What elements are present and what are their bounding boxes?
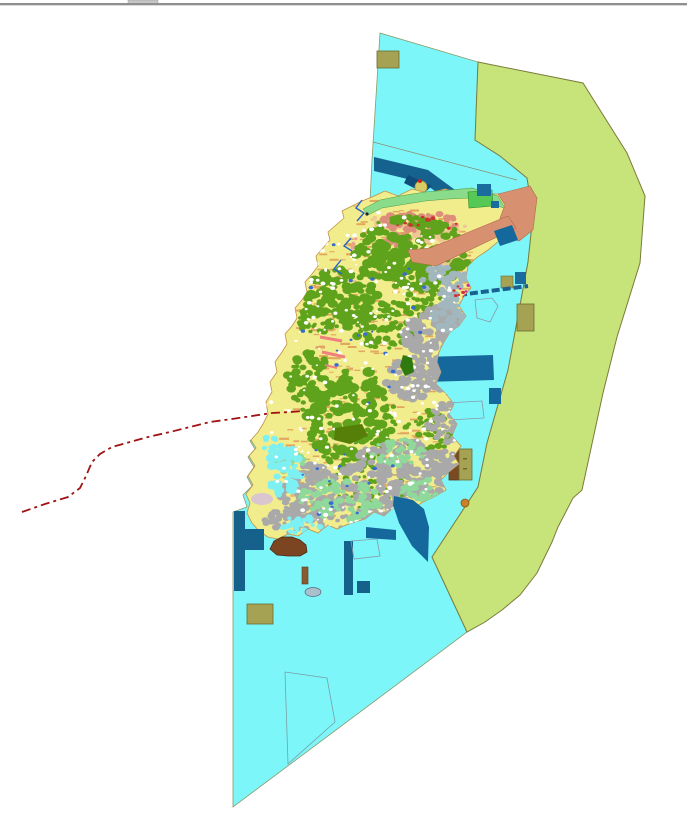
khaki-square-south bbox=[247, 604, 273, 624]
window-top-border-light bbox=[0, 5, 687, 6]
blue-pad-east bbox=[515, 272, 526, 284]
blue-square-northeast bbox=[477, 184, 491, 196]
nw-black-dot bbox=[365, 212, 368, 215]
facility-mark-2 bbox=[463, 468, 467, 470]
facility-mark-1 bbox=[463, 458, 467, 460]
khaki-rect-east bbox=[517, 304, 534, 331]
orange-buoy-dot bbox=[461, 499, 469, 507]
blue-square-northeast-small bbox=[491, 201, 499, 208]
south-pier-bar bbox=[344, 541, 353, 595]
facility-rect-khaki bbox=[459, 449, 472, 480]
south-blue-square bbox=[357, 581, 370, 593]
sw-pier-vertical bbox=[234, 511, 245, 591]
khaki-pad-east bbox=[501, 276, 513, 288]
blue-pad-southeast bbox=[489, 388, 501, 404]
landuse-map bbox=[0, 0, 687, 821]
sw-pier-arm bbox=[245, 529, 264, 550]
reclamation-square-north bbox=[377, 51, 399, 68]
gray-islet-blob bbox=[305, 588, 321, 597]
yellow-islet-red-dot bbox=[418, 179, 422, 183]
small-brown-bar bbox=[302, 567, 308, 584]
coastal-flat-pink bbox=[251, 493, 273, 505]
window-top-border bbox=[0, 3, 687, 5]
map-viewport[interactable] bbox=[0, 0, 687, 821]
